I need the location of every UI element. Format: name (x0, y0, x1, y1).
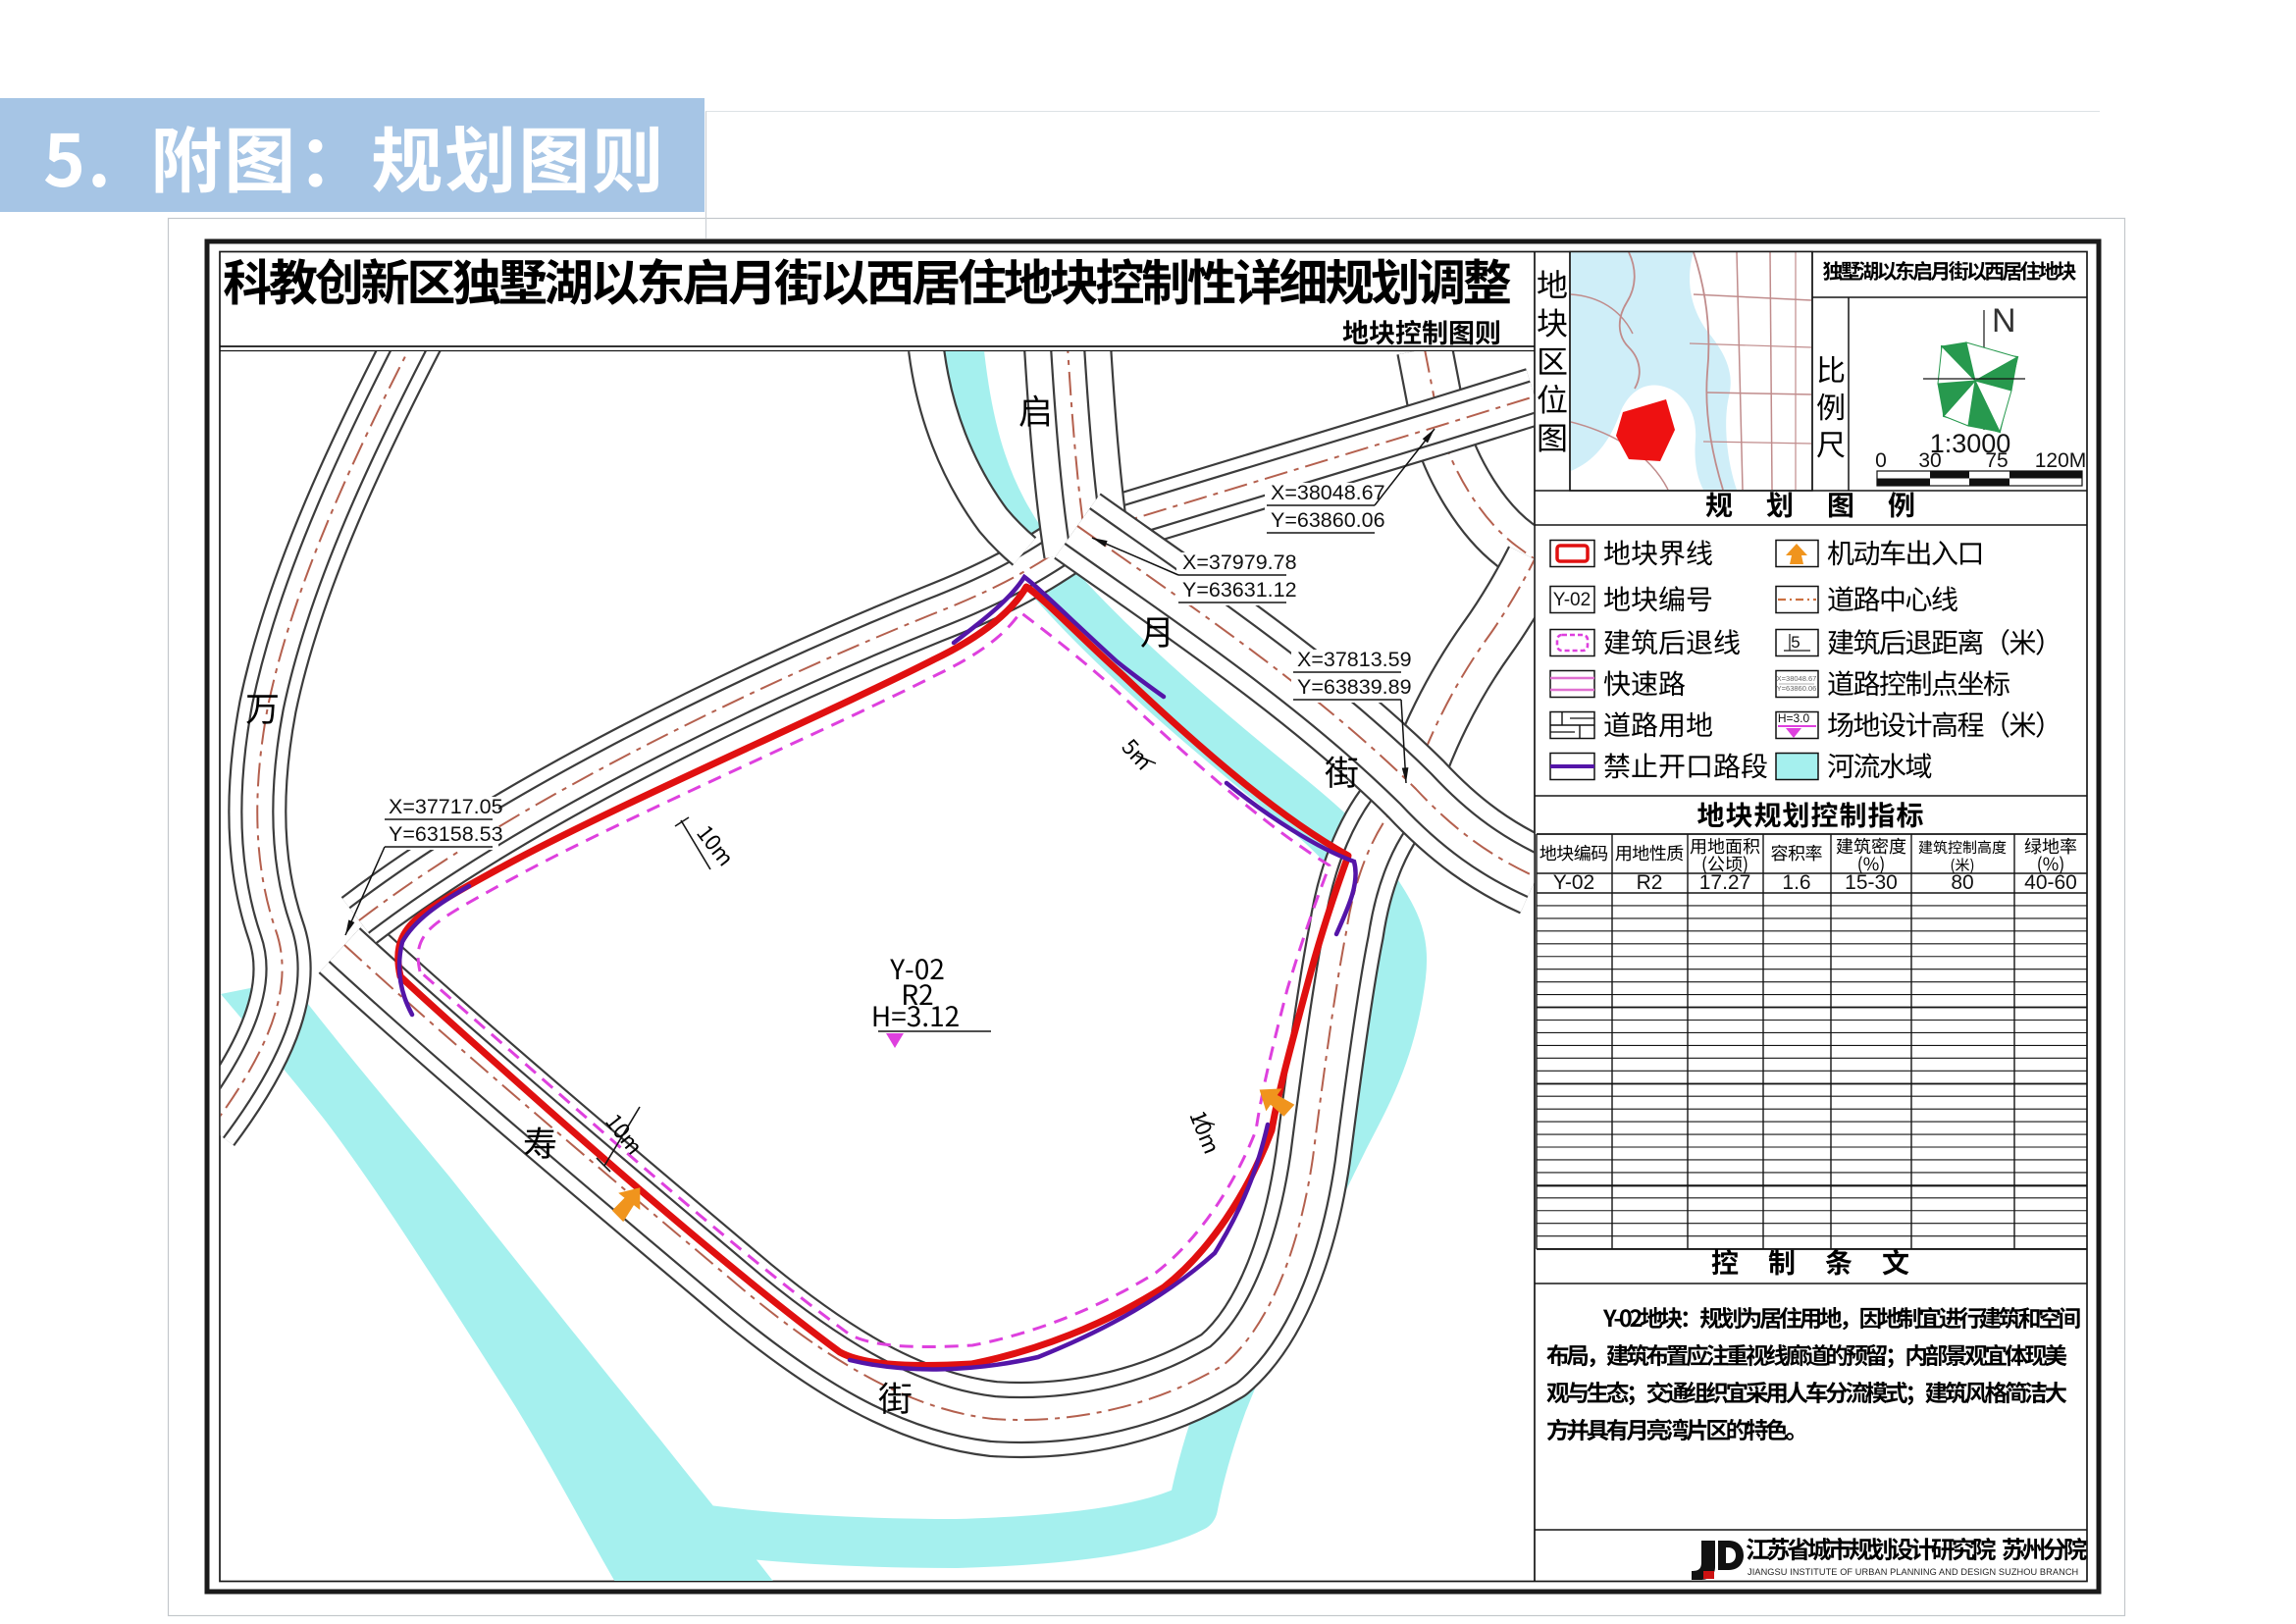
svg-text:Y=63860.06: Y=63860.06 (1271, 508, 1385, 532)
svg-text:X=38048.67: X=38048.67 (1271, 481, 1385, 504)
svg-text:Y=63158.53: Y=63158.53 (389, 822, 503, 846)
svg-text:Y=63631.12: Y=63631.12 (1182, 578, 1297, 602)
svg-text:5: 5 (1791, 633, 1800, 652)
svg-text:Y=63839.89: Y=63839.89 (1297, 675, 1412, 699)
svg-text:Y-02: Y-02 (1553, 590, 1591, 610)
svg-text:75: 75 (1985, 449, 2008, 472)
svg-text:R2: R2 (1637, 871, 1663, 894)
svg-text:X=37979.78: X=37979.78 (1182, 550, 1297, 574)
svg-text:Y-02: Y-02 (1553, 871, 1594, 894)
svg-text:0: 0 (1875, 449, 1887, 472)
svg-text:15-30: 15-30 (1845, 871, 1898, 894)
svg-text:X=38048.67: X=38048.67 (1777, 674, 1817, 683)
svg-text:JIANGSU INSTITUTE OF URBAN PLA: JIANGSU INSTITUTE OF URBAN PLANNING AND … (1748, 1567, 2078, 1577)
svg-text:H=3.0: H=3.0 (1778, 711, 1810, 725)
svg-text:80: 80 (1951, 871, 1973, 894)
svg-text:Y=63860.06: Y=63860.06 (1777, 684, 1817, 693)
svg-text:30: 30 (1918, 449, 1941, 472)
svg-text:17.27: 17.27 (1699, 871, 1751, 894)
svg-text:X=37717.05: X=37717.05 (389, 795, 503, 818)
svg-text:120M: 120M (2035, 449, 2087, 472)
svg-text:N: N (1992, 302, 2016, 340)
svg-text:40-60: 40-60 (2024, 871, 2077, 894)
svg-text:X=37813.59: X=37813.59 (1297, 648, 1412, 671)
svg-text:1.6: 1.6 (1782, 871, 1810, 894)
